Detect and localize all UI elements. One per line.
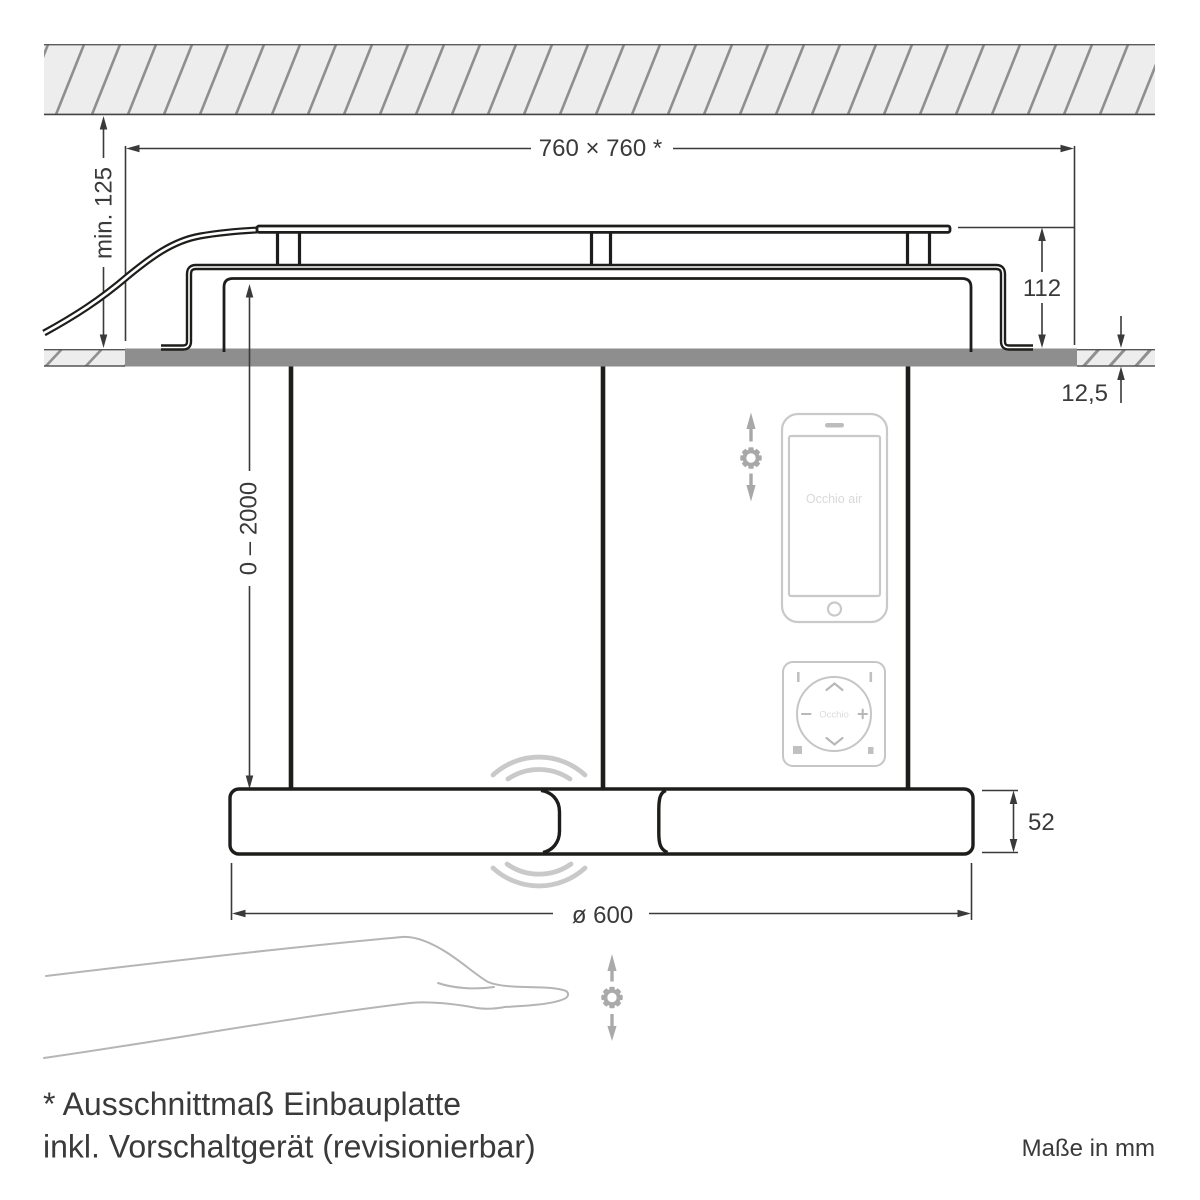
svg-text:Occhio: Occhio [819, 710, 849, 721]
svg-text:760 × 760 *: 760 × 760 * [539, 135, 662, 162]
svg-text:Occhio air: Occhio air [806, 492, 862, 506]
svg-text:52: 52 [1028, 809, 1055, 836]
svg-text:ø 600: ø 600 [572, 902, 633, 929]
svg-text:min. 125: min. 125 [91, 167, 118, 259]
svg-text:0 – 2000: 0 – 2000 [236, 482, 263, 575]
svg-text:112: 112 [1023, 275, 1061, 302]
svg-text:inkl. Vorschaltgerät (revision: inkl. Vorschaltgerät (revisionierbar) [43, 1129, 536, 1165]
svg-text:* Ausschnittmaß Einbauplatte: * Ausschnittmaß Einbauplatte [43, 1086, 461, 1122]
svg-text:12,5: 12,5 [1061, 380, 1108, 407]
svg-text:Maße in mm: Maße in mm [1022, 1135, 1155, 1162]
